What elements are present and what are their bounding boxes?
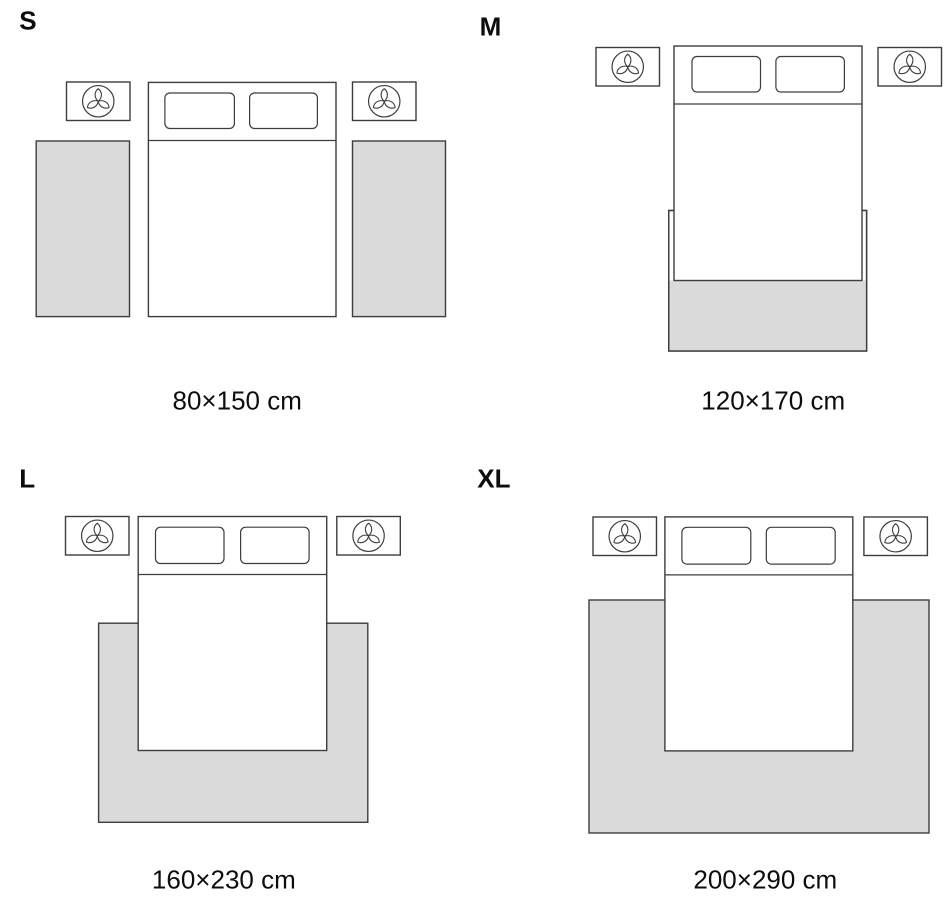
svg-text:200×290 cm: 200×290 cm [693, 865, 837, 895]
svg-text:S: S [19, 6, 36, 36]
svg-text:XL: XL [477, 464, 510, 494]
svg-text:L: L [19, 464, 35, 494]
svg-text:M: M [480, 11, 502, 41]
svg-text:160×230 cm: 160×230 cm [152, 865, 296, 895]
svg-text:120×170 cm: 120×170 cm [701, 386, 845, 416]
svg-text:80×150 cm: 80×150 cm [173, 386, 302, 416]
